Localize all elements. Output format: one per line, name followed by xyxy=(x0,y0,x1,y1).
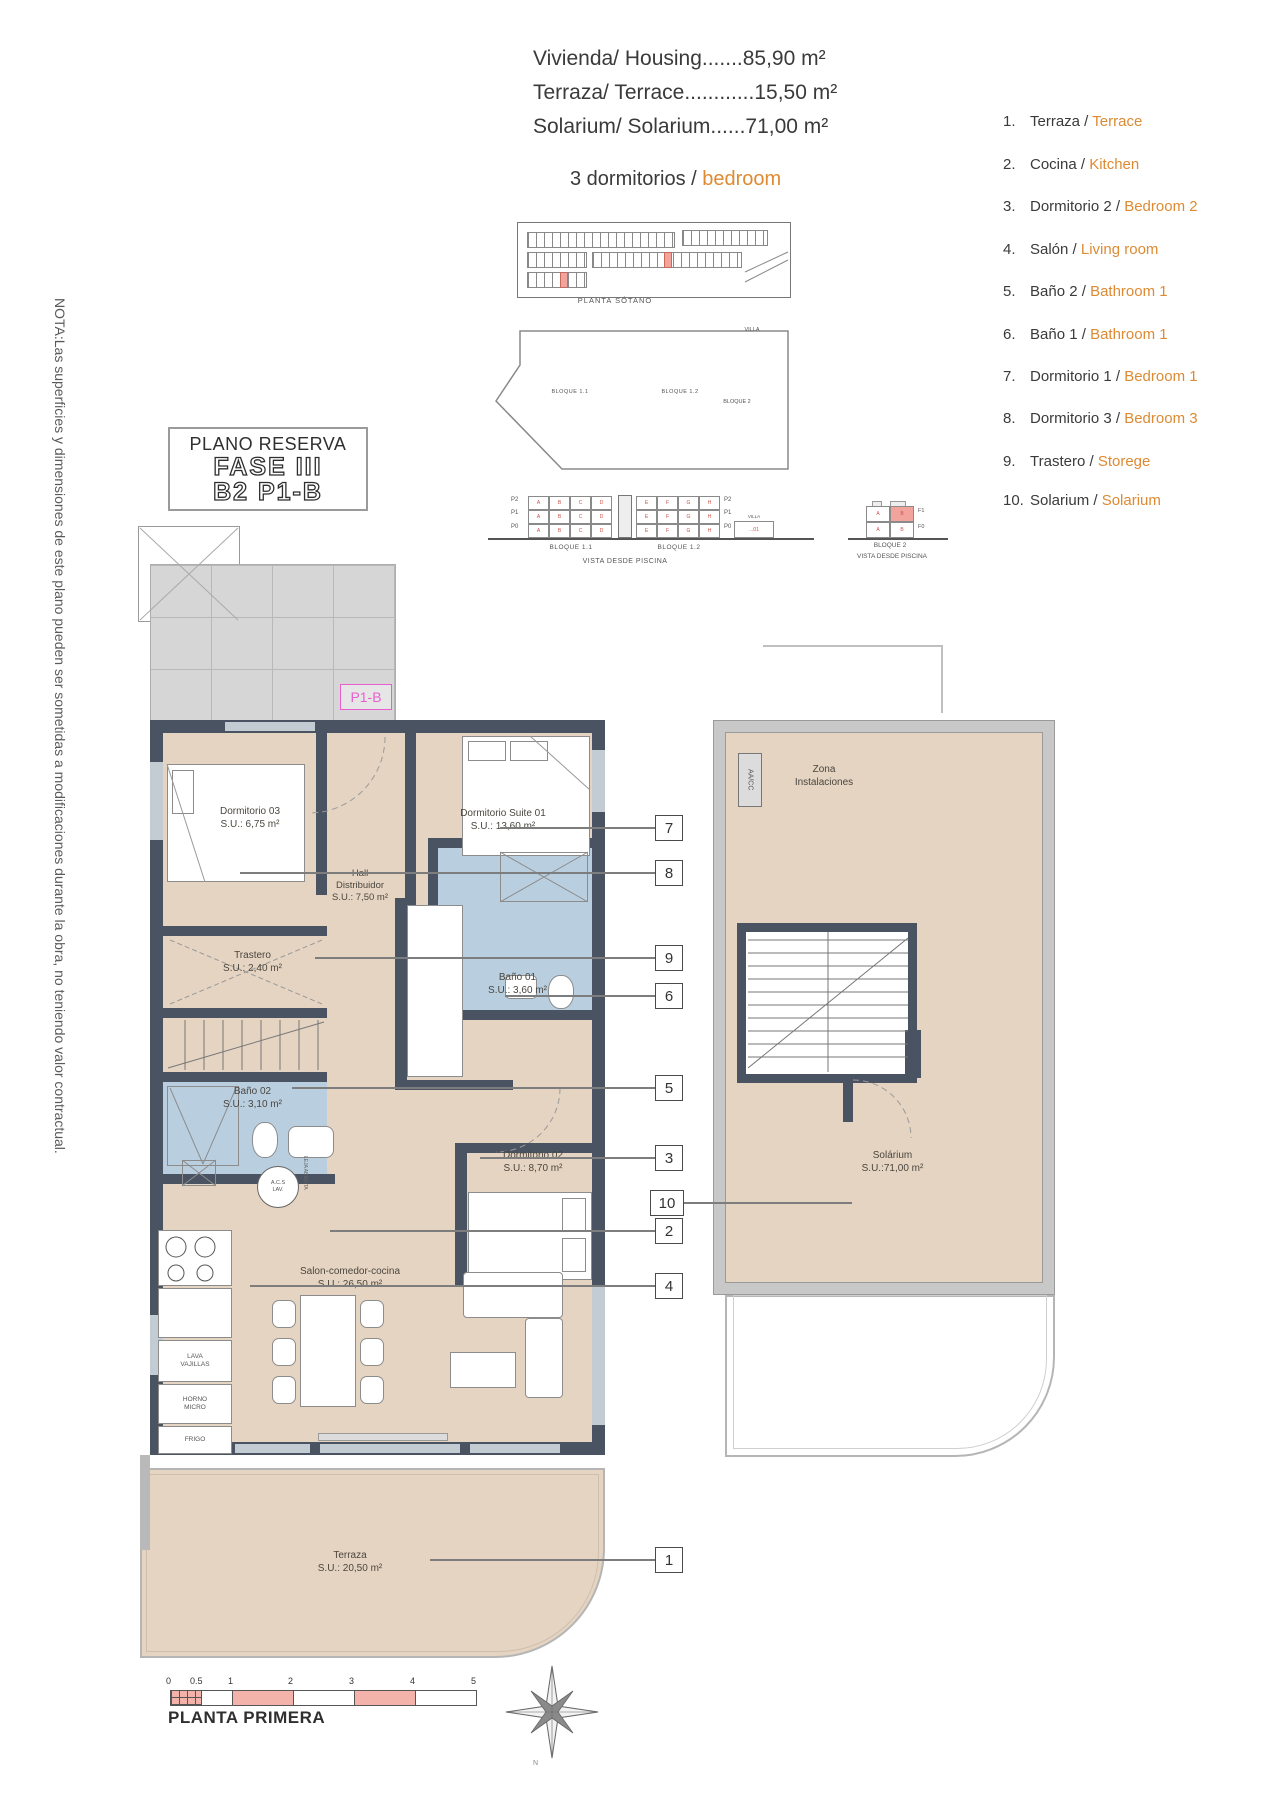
reserve-phase: FASE III xyxy=(170,455,366,480)
window xyxy=(225,722,315,731)
reserve-box: PLANO RESERVA FASE III B2 P1-B xyxy=(168,427,368,511)
site-unit: F xyxy=(660,344,679,380)
elev2-highlighted-unit: B xyxy=(890,506,914,522)
elev-grid-2: EFGH EFGH EFGH xyxy=(636,496,720,538)
callout-10: 10 xyxy=(650,1190,684,1216)
partition xyxy=(150,1008,327,1018)
site-unit: H xyxy=(706,344,725,380)
callout-8: 8 xyxy=(655,860,683,886)
parking-strip xyxy=(527,232,675,248)
site-unit: B xyxy=(550,344,569,380)
elev-villa: ...01 xyxy=(734,521,774,538)
legend-item: 7.Dormitorio 1 / Bedroom 1 xyxy=(1003,368,1273,385)
highlighted-parking xyxy=(664,252,672,268)
window xyxy=(592,750,605,812)
room-label-bano01: Baño 01S.U.: 3,60 m² xyxy=(465,972,570,997)
room-label-dorm02: Dormitorio 02S.U.: 8,70 m² xyxy=(478,1150,588,1175)
legend-item: 10.Solarium / Solarium xyxy=(1003,492,1273,509)
summary-terrace: Terraza/ Terrace............15,50 m² xyxy=(533,76,837,110)
room-label-trastero: TrasteroS.U.: 2,40 m² xyxy=(200,950,305,975)
room-label-dorm03: Dormitorio 03S.U.: 6,75 m² xyxy=(195,806,305,831)
scale-tick: 4 xyxy=(410,1676,415,1686)
chair xyxy=(272,1300,296,1328)
scale-tick: 2 xyxy=(288,1676,293,1686)
scale-tick: 0.5 xyxy=(190,1676,203,1686)
callout-1: 1 xyxy=(655,1547,683,1573)
bathtub xyxy=(500,852,588,902)
chair xyxy=(360,1338,384,1366)
callout-5: 5 xyxy=(655,1075,683,1101)
sheet-title: PLANTA PRIMERA xyxy=(168,1708,325,1728)
legend-item: 2.Cocina / Kitchen xyxy=(1003,156,1273,173)
leader-line xyxy=(500,827,655,829)
parking-strip xyxy=(682,230,768,246)
parking-strip xyxy=(527,272,587,288)
elev-tower xyxy=(618,495,632,538)
bloque2-unit-b-highlighted: B xyxy=(712,432,758,460)
shaft xyxy=(182,1160,216,1186)
parking-strip xyxy=(527,252,587,268)
site-unit: E xyxy=(637,344,656,380)
bedrooms-es: 3 dormitorios / xyxy=(570,168,702,190)
fridge: FRIGO xyxy=(158,1426,232,1454)
elev2-grid: A B A B xyxy=(866,506,914,538)
kitchen-cabinet xyxy=(158,1288,232,1338)
chair xyxy=(272,1338,296,1366)
room-label-terraza: TerrazaS.U.: 20,50 m² xyxy=(270,1550,430,1575)
partition xyxy=(405,733,416,918)
leader-line xyxy=(505,995,655,997)
bloque11-label: BLOQUE 1.1 xyxy=(534,389,606,395)
stairwell xyxy=(737,923,917,1083)
legend-item: 1.Terraza / Terrace xyxy=(1003,113,1273,130)
north-compass-icon xyxy=(506,1666,598,1758)
leader-line xyxy=(330,1230,655,1232)
window xyxy=(592,1285,605,1425)
bloque2-label: BLOQUE 2 xyxy=(706,399,768,405)
vista-label-2: VISTA DESDE PISCINA xyxy=(850,553,934,560)
water-heater: A.C.SLAV. xyxy=(257,1166,299,1208)
partition xyxy=(395,1080,513,1090)
window xyxy=(470,1444,560,1453)
ground-line xyxy=(848,538,948,540)
site-unit: G xyxy=(683,344,702,380)
highlighted-parking xyxy=(560,272,568,288)
sliding-door-leaf xyxy=(318,1433,448,1441)
door-jamb xyxy=(843,1076,853,1122)
partition xyxy=(455,1143,467,1285)
dining-table xyxy=(300,1295,356,1407)
scale-tick: 3 xyxy=(349,1676,354,1686)
oven-microwave: HORNOMICRO xyxy=(158,1384,232,1424)
legend-item: 5.Baño 2 / Bathroom 1 xyxy=(1003,283,1273,300)
disclaimer-note: NOTA:Las superficies y dimensiones de es… xyxy=(52,298,68,1368)
elev-grid-1: ABCD ABCD ABCD xyxy=(528,496,612,538)
callout-3: 3 xyxy=(655,1145,683,1171)
callout-7: 7 xyxy=(655,815,683,841)
room-label-salon: Salon-comedor-cocinaS.U.: 26,50 m² xyxy=(255,1266,445,1291)
coffee-table xyxy=(450,1352,516,1388)
pillow xyxy=(172,770,194,814)
terrace-wall-stub xyxy=(140,1455,150,1550)
wall-top xyxy=(150,720,605,733)
villa-unit: ...01 xyxy=(734,344,770,376)
scale-bar xyxy=(170,1690,477,1706)
leader-line xyxy=(292,1087,655,1089)
ground-line xyxy=(488,538,814,540)
summary-solarium: Solarium/ Solarium......71,00 m² xyxy=(533,110,837,144)
basement-label: PLANTA SÓTANO xyxy=(560,296,670,305)
bedrooms-en: bedroom xyxy=(702,168,781,190)
site-unit: C xyxy=(573,344,592,380)
room-label-solarium: SoláriumS.U.:71,00 m² xyxy=(835,1150,950,1175)
callout-2: 2 xyxy=(655,1218,683,1244)
chair xyxy=(360,1376,384,1404)
legend-item: 9.Trastero / Storege xyxy=(1003,453,1273,470)
villa-label: VILLA xyxy=(733,327,771,333)
scale-tick: 0 xyxy=(166,1676,171,1686)
legend-item: 4.Salón / Living room xyxy=(1003,241,1273,258)
leader-line xyxy=(315,957,655,959)
roof-line xyxy=(941,645,943,713)
bedrooms-line: 3 dormitorios / bedroom xyxy=(570,168,781,191)
chair xyxy=(272,1376,296,1404)
callout-6: 6 xyxy=(655,983,683,1009)
callout-9: 9 xyxy=(655,945,683,971)
aacc-unit: AA/CC xyxy=(738,753,762,807)
stove xyxy=(158,1230,232,1286)
sliding-door xyxy=(320,1444,460,1453)
summary-housing: Vivienda/ Housing.......85,90 m² xyxy=(533,42,837,76)
area-summary: Vivienda/ Housing.......85,90 m² Terraza… xyxy=(533,42,837,144)
leader-line xyxy=(240,872,655,874)
north-label: N xyxy=(533,1760,538,1767)
partition xyxy=(395,898,407,1090)
unit-tag: P1-B xyxy=(340,684,392,710)
zona-instalaciones-label: ZonaInstalaciones xyxy=(778,764,870,789)
legend-item: 8.Dormitorio 3 / Bedroom 3 xyxy=(1003,410,1273,427)
window xyxy=(150,762,163,840)
vista-label-1: VISTA DESDE PISCINA xyxy=(570,558,680,565)
pillow xyxy=(468,741,506,761)
sofa-chaise xyxy=(525,1318,563,1398)
scale-tick: 1 xyxy=(228,1676,233,1686)
roof-line xyxy=(763,645,943,647)
wardrobe xyxy=(407,905,463,1077)
pillow xyxy=(562,1238,586,1272)
room-label-bano02: Baño 02S.U.: 3,10 m² xyxy=(205,1086,300,1111)
room-label-suite01: Dormitorio Suite 01S.U.: 13,60 m² xyxy=(438,808,568,833)
chair xyxy=(360,1300,384,1328)
bloque2-unit-a: A xyxy=(712,408,754,430)
window xyxy=(235,1444,310,1453)
bloque12-label: BLOQUE 1.2 xyxy=(644,389,716,395)
floorplan-sheet: NOTA:Las superficies y dimensiones de es… xyxy=(0,0,1280,1811)
leader-line xyxy=(430,1559,655,1561)
pillow xyxy=(510,741,548,761)
stair-wall-stub xyxy=(905,1030,921,1078)
site-unit: A xyxy=(527,344,546,380)
sink xyxy=(288,1126,334,1158)
open-shelf-label: LEJA ABIERTA xyxy=(302,1156,308,1202)
leader-line xyxy=(682,1202,852,1204)
piscina: PISCINA xyxy=(573,428,641,452)
sofa xyxy=(463,1272,563,1318)
callout-4: 4 xyxy=(655,1273,683,1299)
scale-tick: 5 xyxy=(471,1676,476,1686)
reserve-unit: B2 P1-B xyxy=(170,480,366,505)
leader-line xyxy=(250,1285,655,1287)
legend-item: 6.Baño 1 / Bathroom 1 xyxy=(1003,326,1273,343)
site-small-structure xyxy=(676,446,696,458)
reserve-title: PLANO RESERVA xyxy=(170,434,366,455)
leader-line xyxy=(480,1157,655,1159)
pillow xyxy=(562,1198,586,1232)
toilet xyxy=(252,1122,278,1158)
legend-item: 3.Dormitorio 2 / Bedroom 2 xyxy=(1003,198,1273,215)
site-unit: D xyxy=(596,344,615,380)
solarium-terrace-inner xyxy=(733,1295,1047,1449)
partition xyxy=(150,1072,327,1082)
partition xyxy=(150,926,327,936)
dishwasher: LAVAVAJILLAS xyxy=(158,1340,232,1382)
